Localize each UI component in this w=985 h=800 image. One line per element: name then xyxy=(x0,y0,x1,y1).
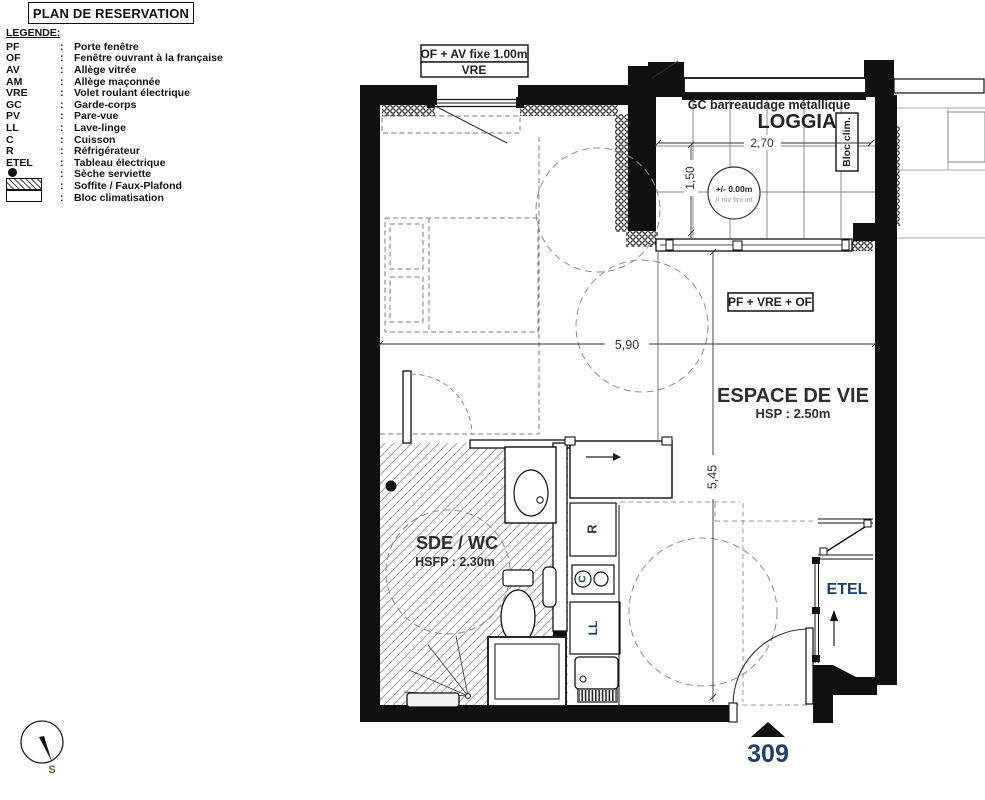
fridge-label: R xyxy=(584,524,599,534)
unit-number: 309 xyxy=(747,740,789,768)
bathroom-room-label: SDE / WC xyxy=(416,533,498,553)
level-value: +/- 0.00m xyxy=(716,184,753,194)
door-annotation-label: PF + VRE + OF xyxy=(728,295,812,309)
width-dim-label: 5,90 xyxy=(615,338,639,352)
washbasin xyxy=(505,447,556,523)
etel-label: ETEL xyxy=(827,581,868,598)
loggia-room-label: LOGGIA xyxy=(758,111,837,133)
height-dim-label: 5,45 xyxy=(705,465,719,489)
compass-icon: S xyxy=(21,721,63,776)
bathroom-ceiling-label: HSFP : 2.30m xyxy=(415,555,495,569)
loggia-railing xyxy=(652,61,985,238)
level-note: // niv fini int xyxy=(715,195,753,204)
living-room-label: ESPACE DE VIE xyxy=(717,385,869,407)
cooktop-label: C xyxy=(578,575,589,582)
entry-soffit-dashes xyxy=(620,502,813,705)
railing-label: GC barreaudage métallique xyxy=(688,98,851,112)
compass-south-label: S xyxy=(48,764,55,776)
loggia-depth-dim: 1,50 xyxy=(683,166,697,190)
loggia-width-dim: 2,70 xyxy=(750,136,774,150)
shower-bench xyxy=(407,693,459,707)
kitchen-units xyxy=(565,437,672,705)
ac-unit-label: Bloc clim. xyxy=(841,117,853,167)
bedroom-window xyxy=(427,97,524,143)
door-annotation-box: PF + VRE + OF xyxy=(728,293,813,311)
towel-dryer-dot xyxy=(386,481,397,492)
entrance-triangle-icon xyxy=(751,722,785,737)
window-annotation-box: OF + AV fixe 1.00m VRE xyxy=(420,45,528,77)
window-annotation-line2: VRE xyxy=(462,63,487,77)
floor-plan-page: PLAN DE RESERVATION LEGENDE: PF:Porte fe… xyxy=(0,0,985,800)
living-ceiling-label: HSP : 2.50m xyxy=(756,406,831,421)
floor-plan-drawing: Bloc clim. +/- 0.00m // niv fini int 2,7… xyxy=(0,0,985,800)
loggia-door-window xyxy=(656,239,852,251)
washer-label: LL xyxy=(586,621,600,636)
ac-unit-box: Bloc clim. xyxy=(836,113,858,171)
level-marker: +/- 0.00m // niv fini int xyxy=(708,167,760,219)
window-annotation-line1: OF + AV fixe 1.00m xyxy=(420,47,527,61)
